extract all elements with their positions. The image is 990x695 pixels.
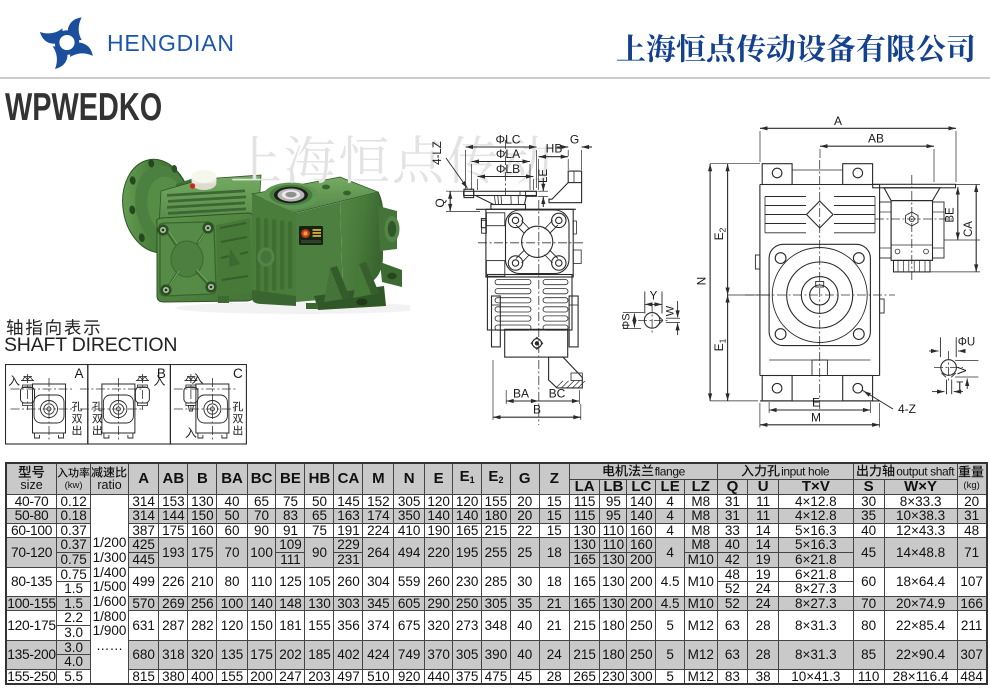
svg-text:LE: LE bbox=[538, 169, 550, 183]
svg-text:B: B bbox=[533, 403, 541, 417]
svg-text:E: E bbox=[812, 396, 820, 410]
svg-text:E2: E2 bbox=[712, 227, 728, 240]
svg-text:B: B bbox=[157, 366, 166, 381]
svg-text:HB: HB bbox=[546, 142, 563, 156]
svg-text:G: G bbox=[570, 133, 579, 147]
svg-text:W: W bbox=[665, 305, 677, 316]
svg-text:A: A bbox=[834, 114, 842, 128]
svg-text:BE: BE bbox=[944, 207, 956, 223]
svg-text:Q: Q bbox=[433, 198, 447, 207]
svg-text:ΦLB: ΦLB bbox=[496, 162, 520, 176]
svg-text:4-Z: 4-Z bbox=[898, 402, 916, 416]
svg-text:BC: BC bbox=[549, 387, 566, 401]
svg-text:CA: CA bbox=[963, 221, 975, 237]
svg-text:ΦLA: ΦLA bbox=[496, 147, 520, 161]
svg-text:BA: BA bbox=[513, 387, 529, 401]
svg-text:4-LZ: 4-LZ bbox=[432, 141, 444, 165]
svg-text:ΦS: ΦS bbox=[621, 313, 633, 329]
svg-text:AB: AB bbox=[868, 132, 884, 146]
svg-text:M: M bbox=[811, 410, 821, 424]
svg-text:V: V bbox=[957, 366, 969, 374]
svg-text:ΦLC: ΦLC bbox=[496, 133, 521, 147]
svg-text:N: N bbox=[695, 277, 709, 286]
svg-text:ΦU: ΦU bbox=[958, 337, 975, 349]
svg-text:A: A bbox=[74, 366, 83, 381]
svg-text:Y: Y bbox=[650, 291, 658, 303]
svg-text:C: C bbox=[233, 366, 243, 381]
svg-text:E1: E1 bbox=[712, 338, 728, 351]
